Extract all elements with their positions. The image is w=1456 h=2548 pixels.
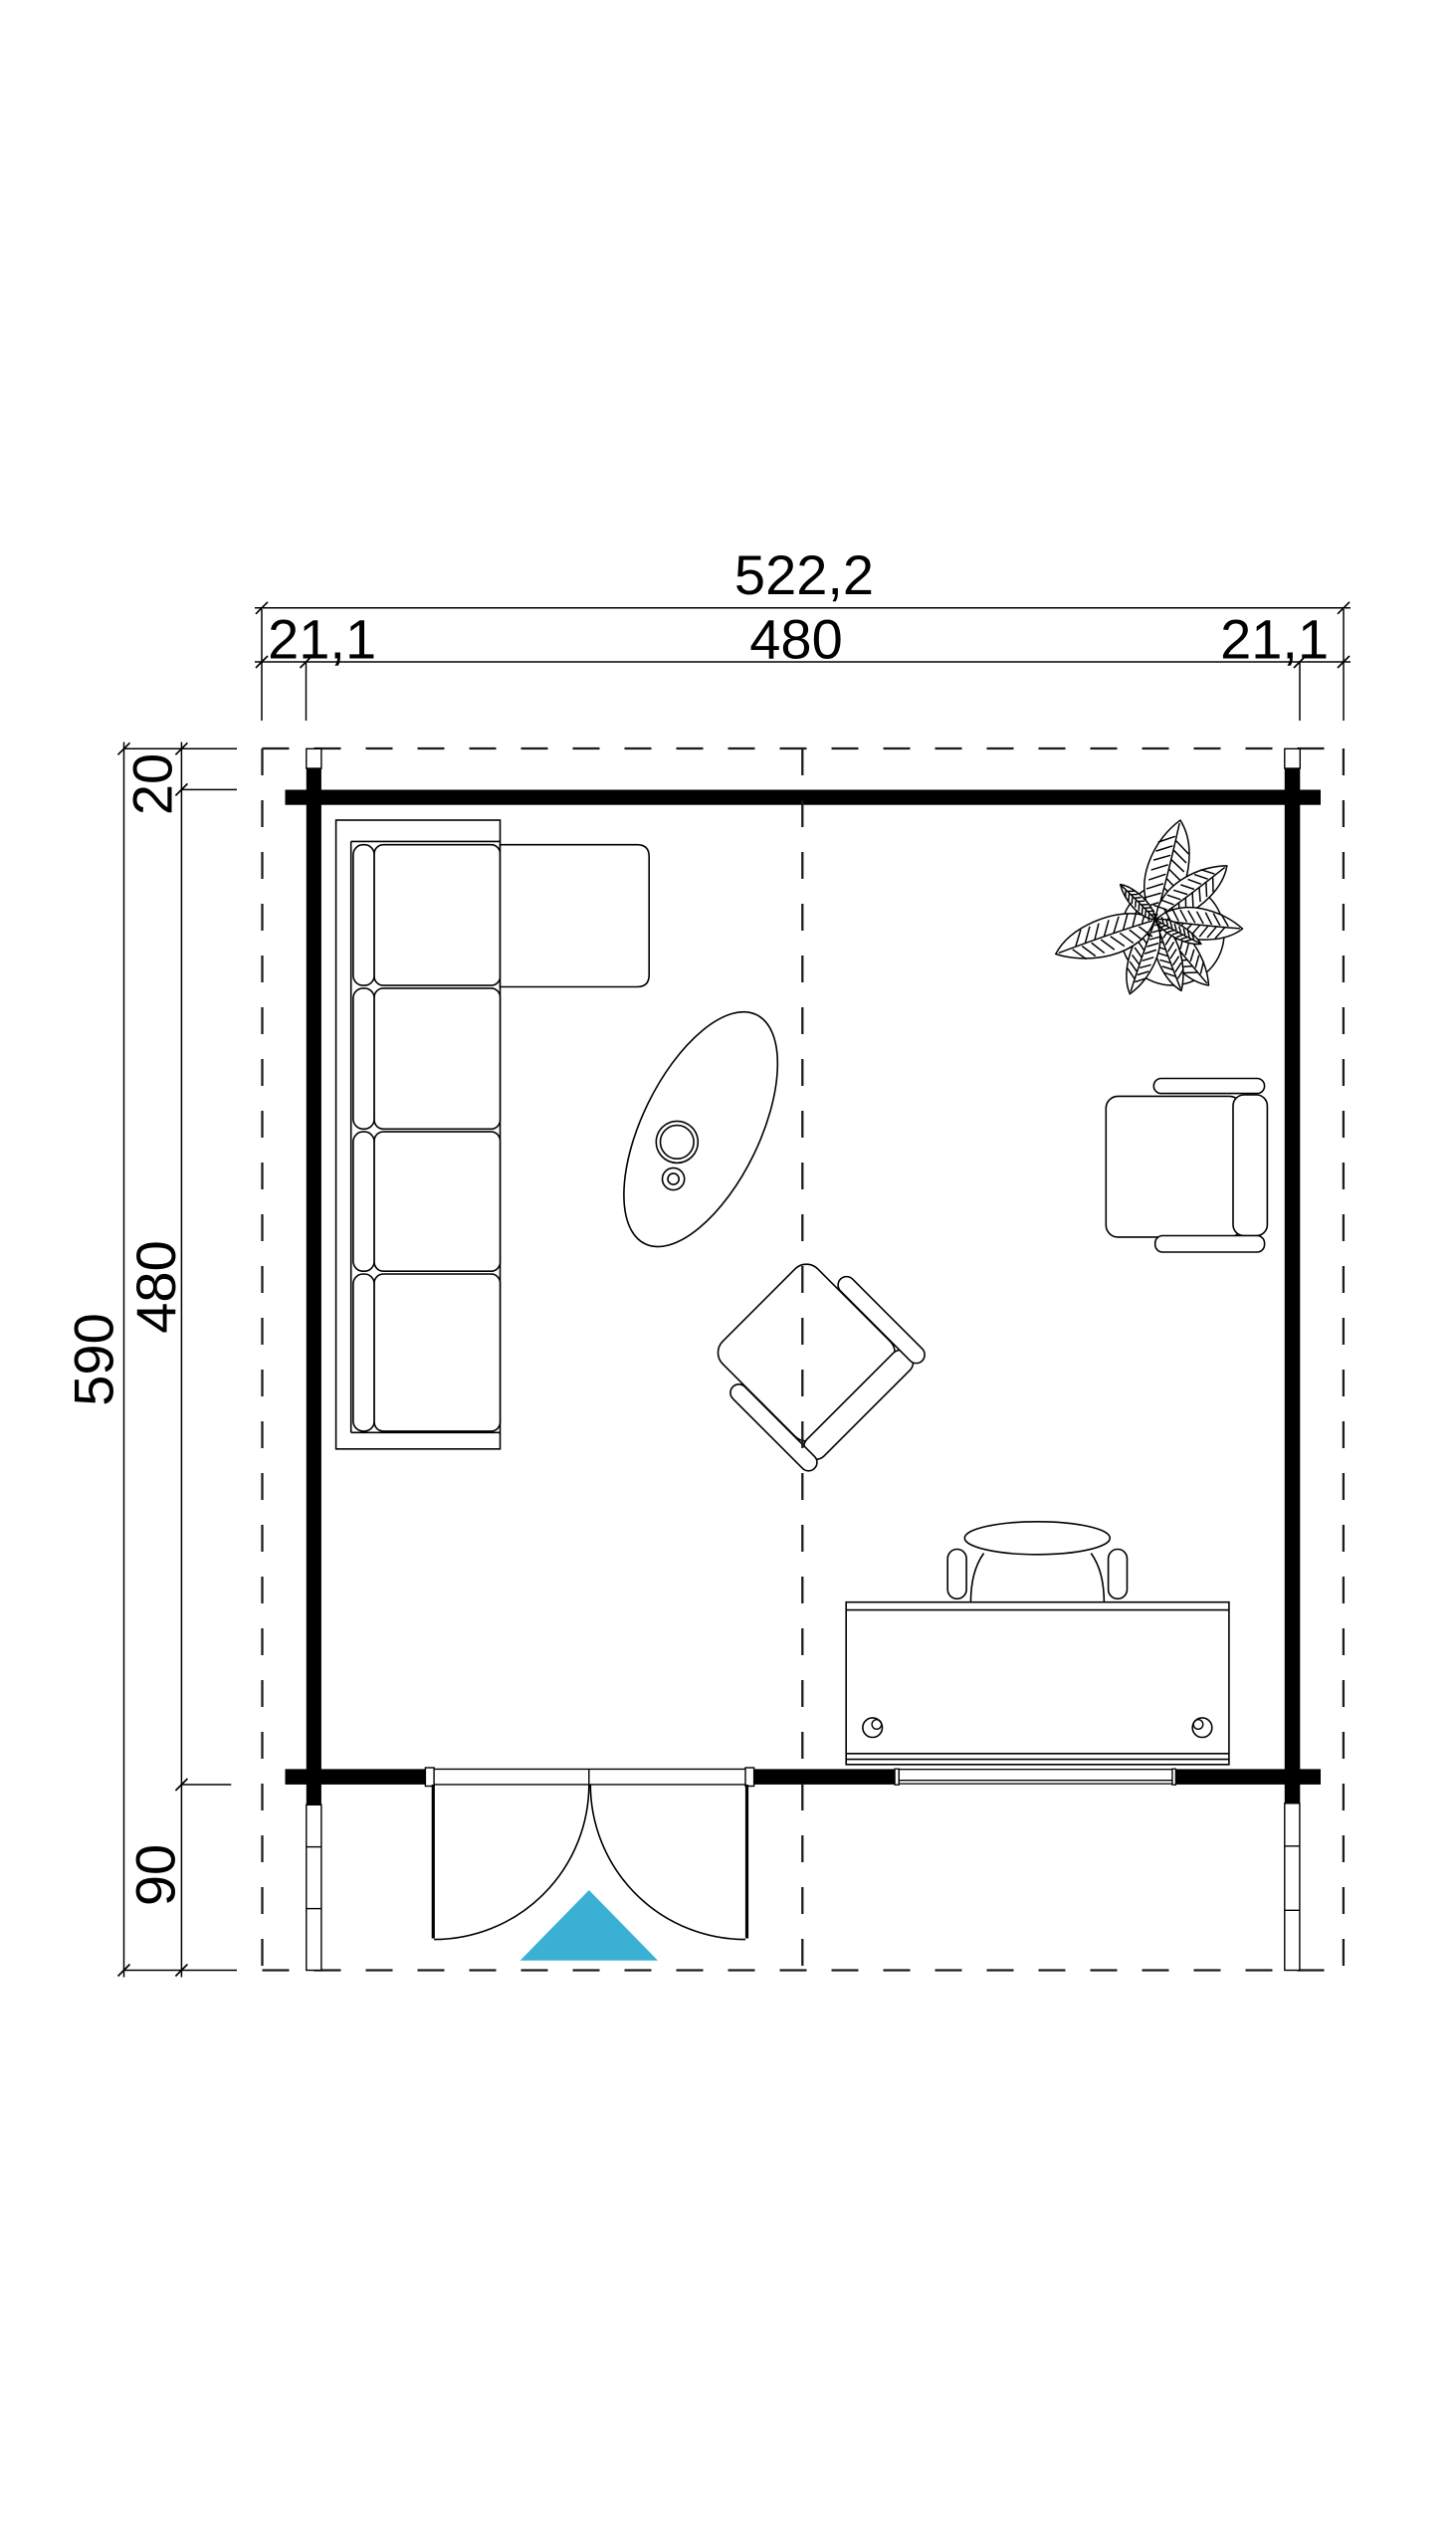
svg-text:480: 480	[749, 607, 842, 670]
svg-text:590: 590	[62, 1313, 124, 1405]
svg-text:480: 480	[124, 1240, 187, 1333]
svg-text:21,1: 21,1	[268, 607, 376, 670]
svg-text:20: 20	[120, 753, 183, 815]
svg-text:522,2: 522,2	[734, 543, 874, 606]
svg-text:90: 90	[123, 1844, 186, 1906]
svg-text:21,1: 21,1	[1220, 607, 1329, 670]
